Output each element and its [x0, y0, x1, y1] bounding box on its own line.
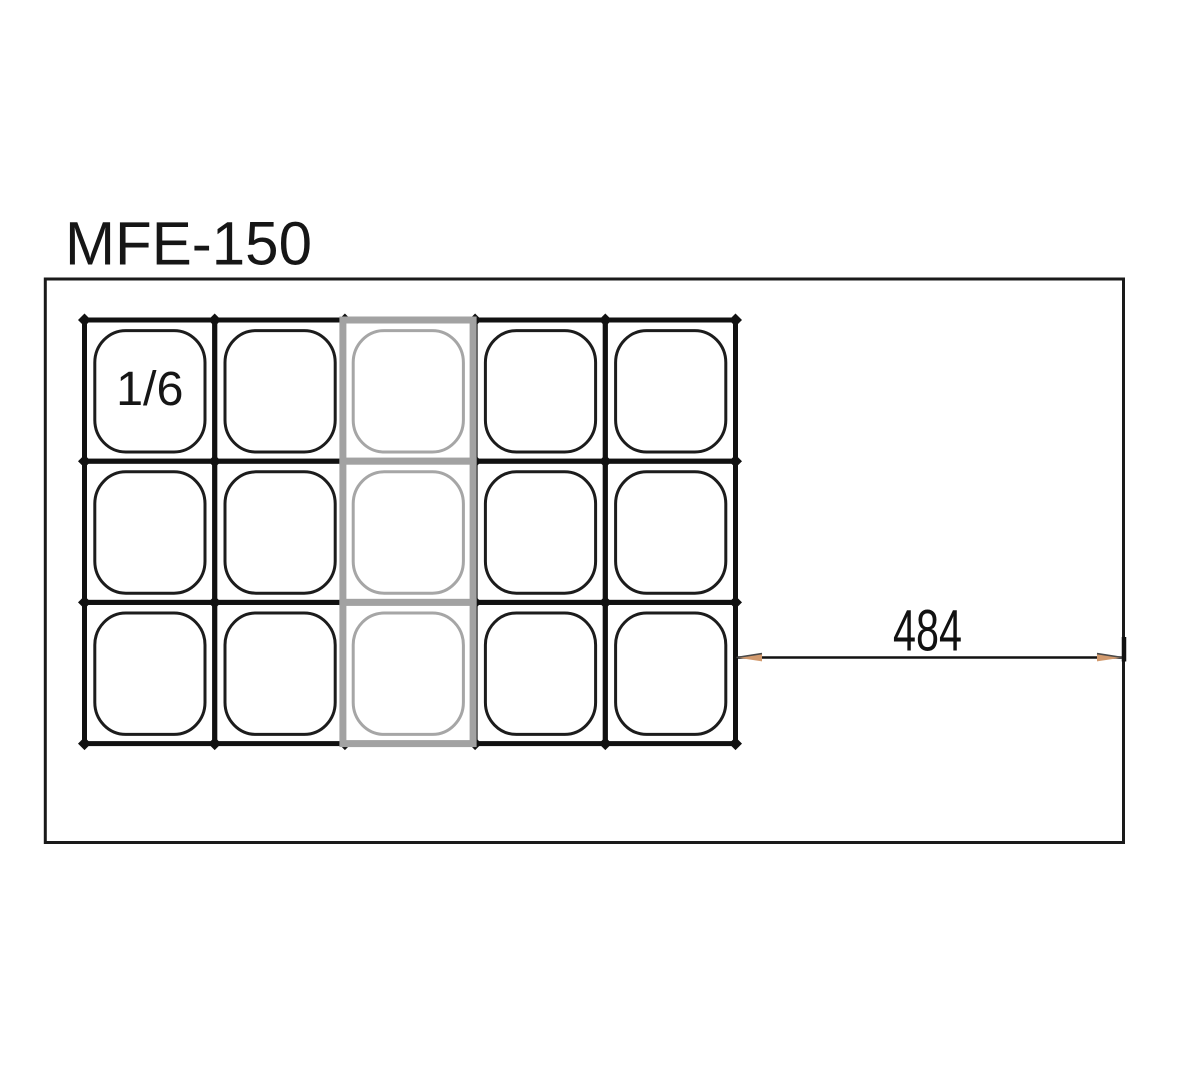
svg-text:MFE-150: MFE-150 [65, 210, 312, 278]
svg-text:1/6: 1/6 [116, 362, 183, 416]
svg-text:484: 484 [893, 599, 962, 664]
